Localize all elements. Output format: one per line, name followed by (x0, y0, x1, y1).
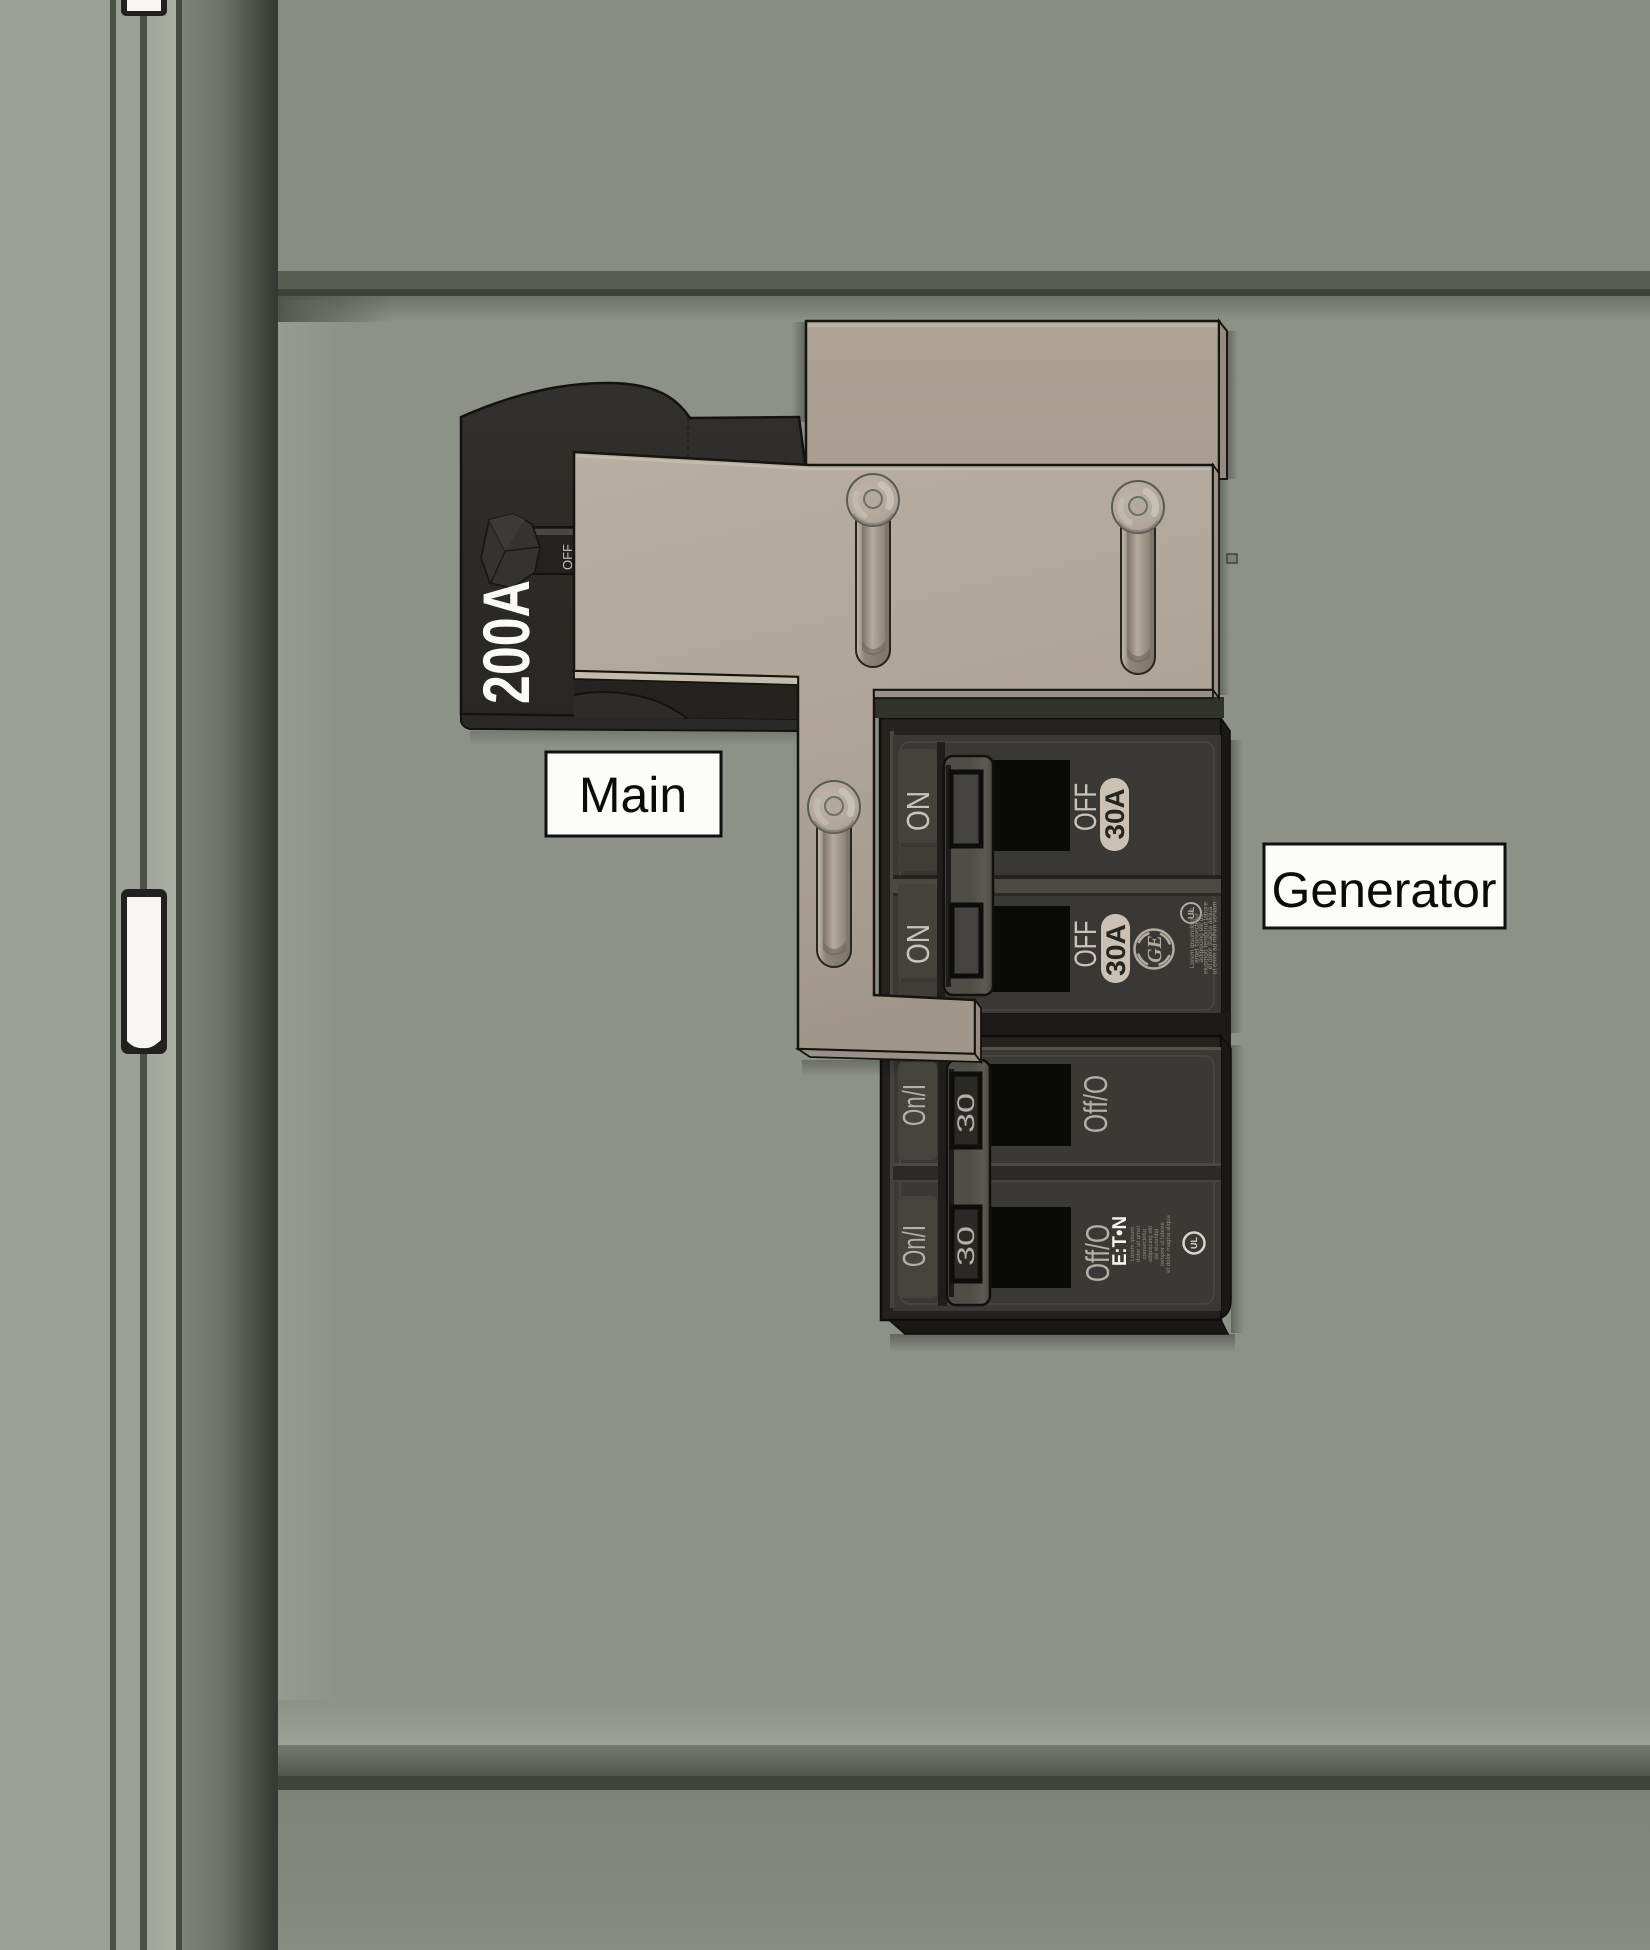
svg-text:adipiscing elit: adipiscing elit (1147, 1226, 1154, 1262)
svg-text:Generator: Generator (1271, 862, 1496, 918)
svg-text:E:T•N: E:T•N (1109, 1216, 1131, 1266)
svg-text:GE: GE (1144, 935, 1166, 963)
svg-text:et dolor magna aliqua: et dolor magna aliqua (1165, 1214, 1172, 1272)
svg-text:200A: 200A (469, 580, 543, 704)
svg-text:30: 30 (953, 1226, 980, 1266)
svg-text:OFF: OFF (1068, 783, 1103, 831)
svg-text:ON: ON (900, 791, 936, 831)
svg-text:Off/O: Off/O (1077, 1075, 1114, 1133)
svg-text:30: 30 (953, 1093, 980, 1133)
svg-text:ON: ON (900, 924, 936, 964)
svg-text:de eiusmbd: de eiusmbd (1153, 1228, 1160, 1259)
svg-text:Lorem ipsum: Lorem ipsum (1129, 1227, 1136, 1262)
svg-text:tempor ut labore: tempor ut labore (1159, 1221, 1166, 1265)
svg-text:OFF: OFF (1068, 921, 1103, 968)
svg-text:dolor sit amet: dolor sit amet (1135, 1226, 1142, 1262)
svg-text:Main: Main (579, 767, 687, 823)
svg-text:ut enim ad minim veniam: ut enim ad minim veniam (1212, 902, 1219, 974)
svg-text:30A: 30A (1101, 924, 1131, 976)
svg-text:30A: 30A (1100, 789, 1130, 840)
svg-text:On/I: On/I (896, 1225, 932, 1267)
svg-text:UL: UL (1189, 1237, 1199, 1249)
svg-text:On/I: On/I (896, 1084, 932, 1126)
